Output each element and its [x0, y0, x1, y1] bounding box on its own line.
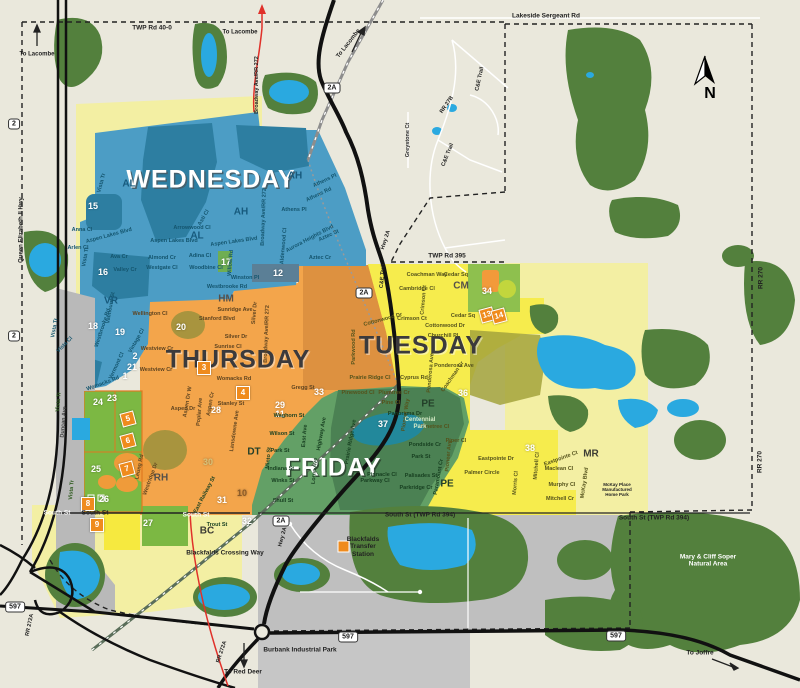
poi-label: Mary & Cliff Soper Natural Area — [680, 554, 736, 569]
street-label-tuesday: Pinetree Cl — [421, 424, 450, 430]
zone-number: 26 — [99, 494, 109, 504]
street-label-wednesday: Aztec Cr — [309, 255, 331, 261]
street-label-wednesday: Vintage Cl — [128, 328, 147, 354]
zone-number: 38 — [525, 443, 535, 453]
street-label-wednesday: Almond Cr — [148, 255, 176, 261]
zone-number: 17 — [221, 257, 231, 267]
north-label: N — [704, 85, 716, 103]
street-label-friday: Highway Ave — [316, 417, 328, 451]
highway-shield: 2 — [8, 331, 20, 342]
numbered-marker: 14 — [490, 307, 507, 324]
street-label-wednesday: Vista Tr — [96, 173, 107, 194]
street-label-tuesday: Pine Cl — [382, 400, 401, 406]
street-label-tuesday: Murphy Cl — [549, 482, 576, 488]
street-label-friday: Waghorn St — [274, 413, 305, 419]
street-label-tuesday: Maclean Cl — [545, 466, 574, 472]
area-code: AH — [288, 170, 302, 182]
road-label: Hwy 2A — [277, 527, 288, 548]
street-label-wednesday: Vista Tr — [50, 318, 60, 339]
road-label: C&E Trail — [440, 142, 455, 167]
road-label: South St — [82, 509, 109, 516]
area-code: HM — [218, 293, 234, 305]
street-label-thursday: Aspen Dr — [171, 406, 195, 412]
street-label-friday: Pondside Cr — [409, 442, 441, 448]
numbered-marker: 5 — [119, 410, 136, 427]
street-label-misc: Vista Tr — [55, 392, 63, 412]
street-label-thursday: Lansdowne Ave — [229, 410, 241, 452]
day-zone-label: WEDNESDAY — [126, 166, 295, 195]
street-label-thursday: Broadway Ave/RR 272 — [263, 305, 271, 363]
street-label-wednesday: Anna Cl — [72, 227, 93, 233]
street-label-wednesday: Westbrooke Rd — [94, 308, 112, 348]
zone-number: 19 — [115, 327, 125, 337]
poi-label: Burbank Industrial Park — [263, 646, 336, 653]
street-label-tuesday: Eastpointe Ct — [543, 450, 578, 468]
zone-number: 11 — [275, 409, 285, 419]
road-label: TWP Rd 40-0 — [132, 24, 172, 31]
street-label-friday: Paramount Cr — [433, 459, 446, 496]
road-label: TWP Rd 395 — [428, 252, 465, 259]
map-labels-layer: WEDNESDAYTHURSDAYTUESDAYFRIDAYALALAHAHVR… — [0, 0, 800, 688]
area-code: PE — [440, 478, 453, 490]
numbered-marker: 9 — [90, 518, 104, 532]
zone-number: 31 — [217, 495, 227, 505]
street-label-wednesday: Arlen Cl — [67, 245, 88, 251]
street-label-thursday: Sunrise Cl — [214, 344, 241, 350]
street-label-friday: Park St — [271, 448, 290, 454]
street-label-tuesday: Plumtree Cr — [378, 390, 409, 396]
road-label: South St — [183, 511, 210, 518]
street-label-tuesday: Cottonwood Dr — [363, 312, 403, 328]
numbered-marker: 4 — [236, 386, 250, 400]
street-label-wednesday: Aspen Lakes Blvd — [85, 227, 132, 245]
street-label-wednesday: Westgate Cl — [146, 265, 177, 271]
street-label-thursday: Stanley St — [218, 401, 245, 407]
road-label: C&E Trail — [474, 66, 485, 91]
zone-number: 2 — [132, 351, 137, 361]
zone-number: 36 — [458, 388, 468, 398]
street-label-tuesday: Churchill Pl — [428, 333, 459, 339]
zone-number: 29 — [275, 400, 285, 410]
highway-shield: 597 — [338, 632, 358, 643]
street-label-wednesday: Vista Tr — [81, 247, 91, 268]
area-code: MR — [583, 448, 599, 460]
street-label-tuesday: Pioneer Way — [401, 398, 412, 431]
zone-number: 34 — [482, 286, 492, 296]
road-label: South St (TWP Rd 394) — [619, 514, 689, 521]
street-label-friday: East Ave — [301, 424, 309, 447]
street-label-thursday: Westridge Dr — [142, 462, 160, 496]
numbered-marker: 8 — [81, 497, 95, 511]
numbered-marker: 7 — [118, 460, 135, 477]
road-label: South St — [44, 509, 71, 516]
highway-shield: 2A — [324, 83, 341, 94]
collection-day-map: WEDNESDAYTHURSDAYTUESDAYFRIDAYALALAHAHVR… — [0, 0, 800, 688]
area-code: VR — [104, 295, 118, 307]
street-label-friday: Prairie Ridge Ave — [344, 419, 358, 465]
street-label-wednesday: Arrowwood Cl — [173, 225, 210, 231]
street-label-thursday: Silver Dr — [251, 301, 259, 324]
road-label: South St (TWP Rd 394) — [385, 511, 455, 518]
road-label: RR 270 — [756, 451, 763, 473]
numbered-marker: 6 — [119, 432, 136, 449]
street-label-misc: Duncan Ave — [59, 406, 68, 438]
zone-number: 18 — [88, 321, 98, 331]
direction-label: To Lacombe — [223, 30, 258, 37]
street-label-friday: Lorna Ave — [311, 458, 320, 485]
street-label-wednesday: Broadway Ave/RR 272 — [260, 188, 268, 246]
street-label-wednesday: Athens Rd — [305, 186, 333, 203]
street-label-wednesday: Valmount St — [105, 292, 117, 324]
street-label-thursday: Sunridge Ave — [217, 307, 252, 313]
street-label-tuesday: Cedar Sq — [451, 313, 475, 319]
poi-label: Centennial Park — [405, 417, 436, 431]
street-label-wednesday: Adina Cl — [189, 253, 211, 259]
street-label-thursday: Leung Rd — [134, 454, 145, 480]
street-label-friday: Parkridge Cr — [399, 485, 432, 491]
area-code: AL — [122, 178, 135, 190]
street-label-tuesday: Cambridge Cl — [399, 286, 435, 292]
street-label-tuesday: Mitchell Cr — [546, 496, 574, 502]
street-label-wednesday: Vista Cl — [56, 336, 75, 355]
street-label-friday: Winks St — [271, 478, 294, 484]
street-label-tuesday: Crimson Ct — [397, 316, 427, 322]
road-label: RR 270 — [757, 267, 764, 289]
street-label-wednesday: Willow Rd — [227, 250, 236, 277]
zone-number: 16 — [98, 267, 108, 277]
street-label-friday: Park St — [412, 454, 431, 460]
street-label-tuesday: Ponderosa Ave — [434, 363, 474, 369]
road-label: RR 27B — [439, 95, 455, 115]
street-label-wednesday: Valley Cr — [113, 267, 136, 273]
street-label-friday: Panorama Dr — [388, 411, 422, 417]
zone-number: 25 — [91, 464, 101, 474]
street-label-tuesday: Cedar Sq — [444, 272, 468, 278]
street-label-tuesday: Piper Cl — [446, 438, 467, 444]
zone-number: 28 — [211, 405, 221, 415]
poi-label: McKay Place Manufactured Home Park — [602, 482, 632, 498]
street-label-tuesday: Pioneer Ave — [444, 440, 453, 472]
street-label-tuesday: Ponderosa Ave — [426, 353, 436, 393]
zone-number: 33 — [314, 387, 324, 397]
zone-number: 24 — [93, 397, 103, 407]
day-zone-label: TUESDAY — [359, 332, 483, 361]
street-label-thursday: Stanford Blvd — [199, 316, 235, 322]
street-label-thursday: Poplar Ave — [196, 398, 205, 427]
zone-number: 10 — [237, 488, 247, 498]
street-label-tuesday: Coachman Cr — [440, 361, 466, 394]
highway-shield: 597 — [5, 602, 25, 613]
street-label-friday: Shull St — [273, 498, 293, 504]
street-label-tuesday: Prairie Ridge Cl — [350, 375, 391, 381]
day-zone-label: THURSDAY — [166, 346, 311, 375]
street-label-friday: Palisades St — [405, 473, 437, 479]
zone-number: 20 — [176, 322, 186, 332]
highway-shield: 2 — [8, 119, 20, 130]
street-label-wednesday: Ava Cr — [110, 254, 128, 260]
zone-number: 15 — [88, 201, 98, 211]
area-code: RH — [154, 472, 168, 484]
street-label-tuesday: Cottonwood Dr — [425, 323, 465, 329]
numbered-marker: 3 — [197, 361, 211, 375]
direction-label: To Red Deer — [224, 668, 262, 675]
direction-label: To Lacombe — [336, 28, 363, 60]
road-label: Blackfalds Crossing Way — [186, 549, 263, 556]
numbered-marker: 13 — [478, 306, 495, 323]
area-code: CM — [453, 280, 469, 292]
street-label-friday: Parkway Cl — [360, 478, 389, 484]
street-label-tuesday: Palmer Circle — [464, 470, 499, 476]
direction-label: To Joffre — [686, 649, 713, 656]
street-label-wednesday: Woodbine Cl — [189, 265, 223, 271]
street-label-tuesday: Coachman Way — [407, 272, 448, 278]
area-code: DT — [247, 446, 260, 458]
street-label-wednesday: Aspen Lakes Blvd — [210, 236, 258, 249]
street-label-tuesday: Pinewood Cl — [342, 390, 375, 396]
street-label-misc: Vista Tr — [68, 480, 76, 500]
street-label-wednesday: Westbrooke Rd — [207, 284, 247, 290]
zone-number: 32 — [242, 516, 252, 526]
area-code: AH — [234, 206, 248, 218]
zone-number: 23 — [107, 393, 117, 403]
street-label-thursday: Gregg St — [291, 385, 314, 391]
street-label-tuesday: McKay Blvd — [580, 467, 591, 499]
street-label-wednesday: Vermont Cl — [108, 352, 126, 381]
street-label-wednesday: Aztec St — [318, 229, 340, 244]
street-label-thursday: Westview Cr — [141, 346, 174, 352]
highway-shield: 2A — [356, 288, 373, 299]
zone-number: 27 — [143, 518, 153, 528]
street-label-thursday: Womacks Rd — [217, 376, 251, 382]
zone-number: 21 — [127, 362, 137, 372]
area-code: PE — [421, 398, 434, 410]
street-label-thursday: Aspen Cr — [206, 391, 216, 416]
street-label-tuesday: Crimson Ct — [420, 285, 429, 315]
street-label-thursday: Westview Cr — [140, 367, 173, 373]
street-label-thursday: Wellington Cl — [132, 311, 167, 317]
direction-label: To Lacombe — [20, 52, 55, 59]
street-label-friday: Wilson St — [269, 431, 294, 437]
zone-number: 37 — [378, 419, 388, 429]
street-label-wednesday: Aspen Lakes Blvd — [150, 238, 197, 244]
road-label: Lakeside Sergeant Rd — [512, 12, 580, 19]
street-label-wednesday: Womacks Rd — [86, 375, 121, 393]
day-zone-label: FRIDAY — [285, 454, 382, 483]
zone-number: 1 — [122, 371, 127, 381]
area-code: AL — [190, 230, 203, 242]
road-label: Greystone Ct — [405, 123, 411, 158]
street-label-wednesday: Winston Pl — [231, 275, 259, 281]
highway-shield: 597 — [606, 631, 626, 642]
highway-shield: 2A — [273, 516, 290, 527]
street-label-wednesday: Athens Pl — [312, 173, 338, 189]
zone-number: 12 — [273, 268, 283, 278]
street-label-thursday: Silver Dr — [225, 334, 248, 340]
street-label-wednesday: Aurora Heights Blvd — [285, 224, 335, 255]
road-label: Queen Elizabeth II Hwy — [19, 197, 26, 263]
street-label-wednesday: Asti Cl — [197, 209, 211, 227]
street-label-wednesday: Athens Pl — [281, 207, 306, 213]
area-code: BC — [200, 525, 214, 537]
zone-number: 30 — [203, 457, 213, 467]
road-label: RR 272A — [216, 640, 229, 663]
street-label-tuesday: Parkwood Rd — [351, 329, 357, 364]
street-label-wednesday: Aldenwood Cl — [279, 227, 288, 264]
road-label: RR 272A — [25, 613, 36, 636]
street-label-tuesday: Eastpointe Dr — [478, 456, 514, 462]
street-label-tuesday: Morris Cl — [512, 471, 520, 495]
road-label: Hwy 2A — [380, 230, 392, 251]
street-label-tuesday: Mitchell Cl — [533, 452, 542, 480]
street-label-friday: Trout St — [207, 522, 228, 528]
road-label: C&E Trail — [379, 264, 387, 289]
street-label-friday: Pinnacle Cl — [367, 472, 397, 478]
street-label-thursday: Aspen Dr W — [182, 386, 194, 418]
poi-label: Blackfalds Transfer Station — [347, 536, 380, 558]
road-label: Broadway Ave/RR 272 — [254, 56, 260, 114]
street-label-friday: Minto St — [265, 447, 273, 469]
street-label-friday: Indiana St — [268, 466, 294, 472]
street-label-friday: East Railway St — [193, 476, 218, 515]
street-label-tuesday: Cyprus Rd — [400, 375, 428, 381]
